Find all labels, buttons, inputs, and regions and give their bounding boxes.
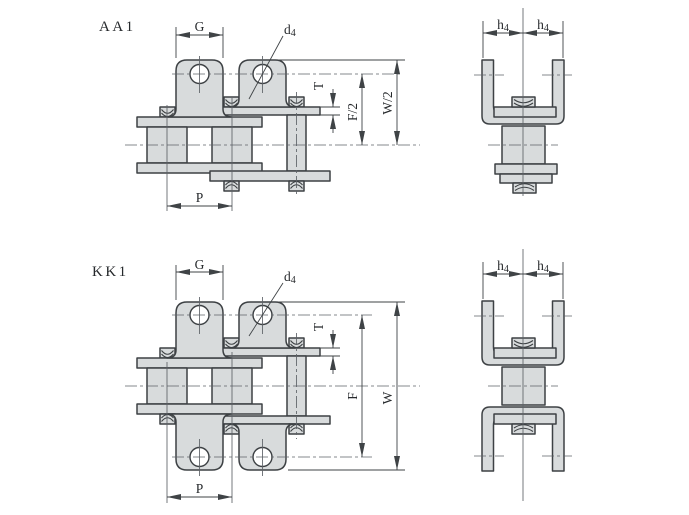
dim-label-f-half: F/2	[345, 103, 360, 121]
view-title-kk1: KK1	[92, 264, 129, 280]
dim-label-t: T	[311, 322, 326, 331]
dim-label-g: G	[195, 257, 205, 272]
inner-link-plate-top	[137, 358, 262, 368]
dim-label-h4-left: h4	[497, 17, 509, 34]
dimension-p: P	[167, 190, 232, 206]
dim-label-h4-left: h4	[497, 258, 509, 275]
drawing-page: G d4 P T F/2 W/2 AA1	[0, 0, 689, 515]
aa1-side-view: G d4 P T F/2 W/2 AA1	[99, 19, 420, 211]
link-plate-edge	[494, 107, 556, 117]
outer-link-plate-bottom	[210, 171, 330, 181]
dim-label-h4-right: h4	[537, 258, 549, 275]
dim-label-d4: d4	[284, 269, 296, 286]
dim-label-h4-right: h4	[537, 17, 549, 34]
dimension-f-half: F/2	[345, 74, 362, 145]
pin-head	[513, 183, 536, 193]
dim-label-g: G	[195, 19, 205, 34]
dim-label-f: F	[345, 392, 360, 400]
pin-head	[512, 424, 535, 434]
dim-label-w: W	[380, 391, 395, 404]
link-plate-edge	[494, 348, 556, 358]
dim-label-p: P	[196, 481, 204, 496]
technical-drawing: G d4 P T F/2 W/2 AA1	[0, 0, 689, 515]
pin-head	[512, 338, 535, 348]
dimension-g: G	[176, 19, 223, 58]
pin-head	[512, 97, 535, 107]
attachment-foot-plate	[210, 348, 320, 356]
kk1-end-view: h4 h4	[474, 249, 572, 501]
dim-label-t: T	[311, 81, 326, 90]
attachment-foot-plate	[210, 416, 330, 424]
dim-label-w-half: W/2	[380, 91, 395, 114]
link-plate-edge	[494, 414, 556, 424]
inner-link-plate-top	[137, 117, 262, 127]
inner-link-plate-bottom	[137, 404, 262, 414]
dimension-g: G	[176, 257, 223, 300]
dimension-p: P	[167, 481, 232, 497]
attachment-foot-plate	[210, 107, 320, 115]
dim-label-p: P	[196, 190, 204, 205]
link-plate-edge	[495, 164, 557, 174]
pin-head	[224, 181, 304, 191]
aa1-end-view: h4 h4	[474, 8, 572, 196]
kk1-side-view: G d4 P T F W KK1	[92, 257, 420, 503]
dim-label-d4: d4	[284, 22, 296, 39]
link-plate-edge	[500, 174, 552, 183]
view-title-aa1: AA1	[99, 19, 136, 35]
